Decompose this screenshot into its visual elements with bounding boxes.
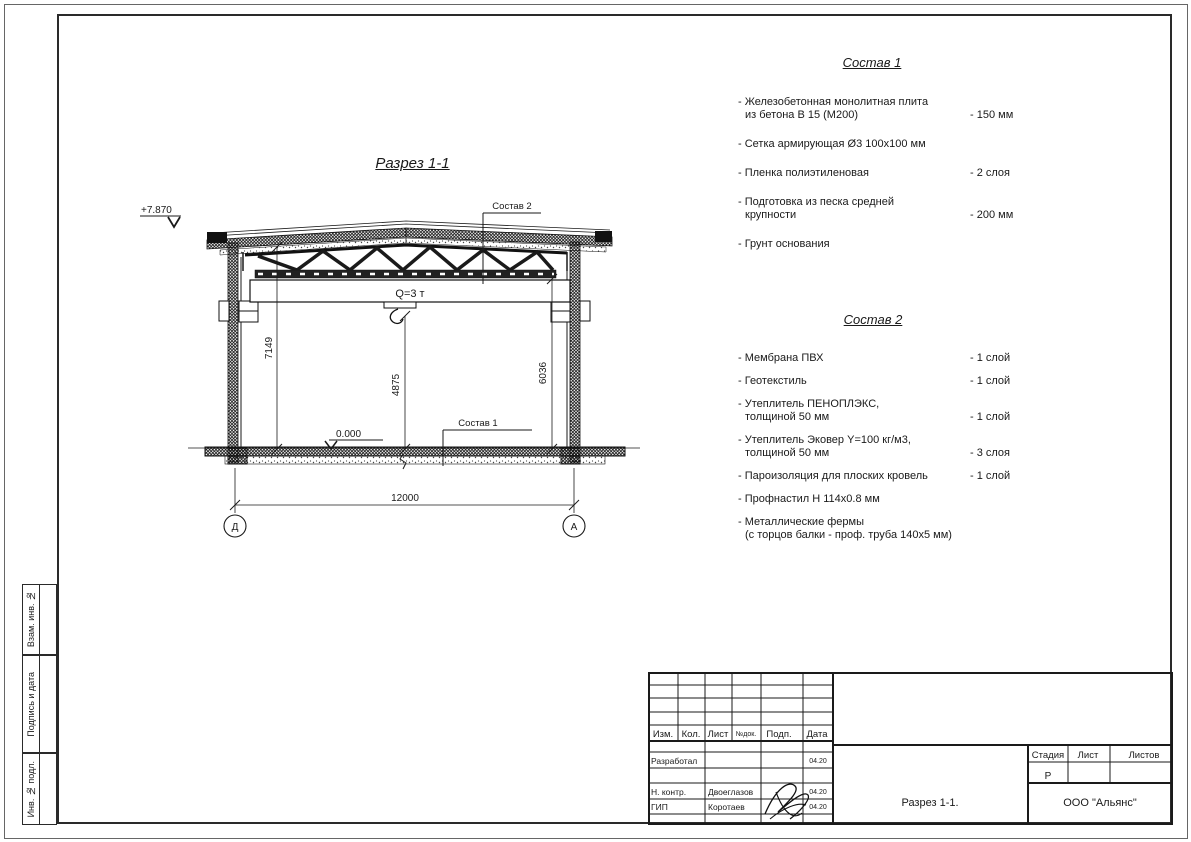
corbel-right <box>551 301 590 322</box>
list-item: - Мембрана ПВХ - 1 слой <box>738 352 1043 365</box>
elevation-zero-label: 0.000 <box>336 429 361 440</box>
tb-doc-title: Разрез 1-1. <box>901 797 958 809</box>
list-item: - Утеплитель Эковер Y=100 кг/м3,толщиной… <box>738 434 1043 460</box>
list-item: - Металлические фермы(с торцов балки - п… <box>738 516 1043 542</box>
tb-stage-label: Стадия <box>1032 750 1064 761</box>
tb-sheet-label: Лист <box>1078 750 1099 761</box>
roof <box>207 221 612 255</box>
list-item: - Грунт основания <box>738 238 1043 251</box>
tb-role-ncontrol: Н. контр. <box>651 787 686 797</box>
tb-role-developer: Разработал <box>651 756 697 766</box>
column-right <box>570 242 580 462</box>
list-item: - Пленка полиэтиленовая - 2 слоя <box>738 167 1043 180</box>
title-block: Изм. Кол. Лист №док. Подп. Дата Разработ… <box>648 672 1173 825</box>
elevation-top-mark: +7.870 <box>140 205 181 227</box>
list-item: - Железобетонная монолитная плитаиз бето… <box>738 96 1043 122</box>
elevation-top-label: +7.870 <box>141 205 172 216</box>
list-item: - Подготовка из песка среднейкрупности -… <box>738 196 1043 222</box>
drawing-sheet: Взам. инв. № Подпись и дата Инв. № подл.… <box>0 0 1191 842</box>
side-stamp-label: Инв. № подл. <box>23 754 40 824</box>
tb-name-gip: Коротаев <box>708 802 745 812</box>
sostav2-heading: Состав 2 <box>828 312 918 327</box>
list-item: - Сетка армирующая Ø3 100х100 мм <box>738 138 1043 151</box>
side-stamp-label: Подпись и дата <box>23 656 40 752</box>
axis-right-label: А <box>571 522 578 533</box>
tb-header-izm: Изм. <box>653 729 673 740</box>
dim-12000-label: 12000 <box>391 493 419 504</box>
sostav1-list: - Железобетонная монолитная плитаиз бето… <box>738 96 1043 267</box>
tb-header-data: Дата <box>806 729 828 740</box>
list-item: - Утеплитель ПЕНОПЛЭКС,толщиной 50 мм - … <box>738 398 1043 424</box>
list-item: - Геотекстиль - 1 слой <box>738 375 1043 388</box>
crane-trolley <box>384 302 416 308</box>
column-left <box>228 243 238 462</box>
tb-header-list: Лист <box>708 729 729 740</box>
list-item: - Профнастил Н 114х0.8 мм <box>738 493 1043 506</box>
dim-6036-label: 6036 <box>538 361 549 384</box>
tb-header-kol: Кол. <box>682 729 701 740</box>
section-drawing: Q=3 т +7.870 0.000 Состав 2 <box>120 150 660 570</box>
dim-4875-label: 4875 <box>391 373 402 396</box>
tb-company: ООО "Альянс" <box>1063 797 1137 809</box>
crane-hook <box>390 309 403 323</box>
leader-sostav1-label: Состав 1 <box>458 418 497 429</box>
tb-date-gip: 04.20 <box>809 804 827 811</box>
tb-header-podp: Подп. <box>766 729 791 740</box>
sostav1-heading: Состав 1 <box>828 55 916 70</box>
side-stamp-cell: Взам. инв. № <box>22 584 57 655</box>
tb-role-gip: ГИП <box>651 802 668 812</box>
axis-left-label: Д <box>232 522 239 533</box>
dim-7149-label: 7149 <box>264 336 275 359</box>
side-stamp-cell: Инв. № подл. <box>22 753 57 825</box>
elevation-zero-mark: 0.000 <box>325 429 383 449</box>
eave-cap-left <box>207 232 227 243</box>
axis-bubbles: Д А <box>224 515 585 537</box>
tb-header-ndok: №док. <box>736 731 757 738</box>
crane-beam: Q=3 т <box>250 280 570 323</box>
leader-sostav2-label: Состав 2 <box>492 201 531 212</box>
tb-date-developer: 04.20 <box>809 758 827 765</box>
dimension-4875: 4875 <box>391 311 410 454</box>
side-stamp-label: Взам. инв. № <box>23 585 40 654</box>
tb-sheets-label: Листов <box>1129 750 1160 761</box>
tb-name-ncontrol: Двоеглазов <box>708 787 754 797</box>
floor-slab <box>188 447 640 469</box>
eave-cap-right <box>595 231 612 242</box>
corbel-left <box>219 301 258 322</box>
floor-sand-band <box>225 456 605 464</box>
tb-stage-value: Р <box>1045 771 1052 782</box>
list-item: - Пароизоляция для плоских кровель - 1 с… <box>738 470 1043 483</box>
footing-left <box>228 448 247 464</box>
tb-date-ncontrol: 04.20 <box>809 789 827 796</box>
side-stamp-cell: Подпись и дата <box>22 655 57 753</box>
crane-capacity-label: Q=3 т <box>395 288 424 300</box>
sostav2-list: - Мембрана ПВХ - 1 слой - Геотекстиль - … <box>738 352 1043 552</box>
dimension-12000: 12000 <box>230 468 579 513</box>
footing-right <box>561 448 580 464</box>
elevation-arrow <box>168 217 180 227</box>
